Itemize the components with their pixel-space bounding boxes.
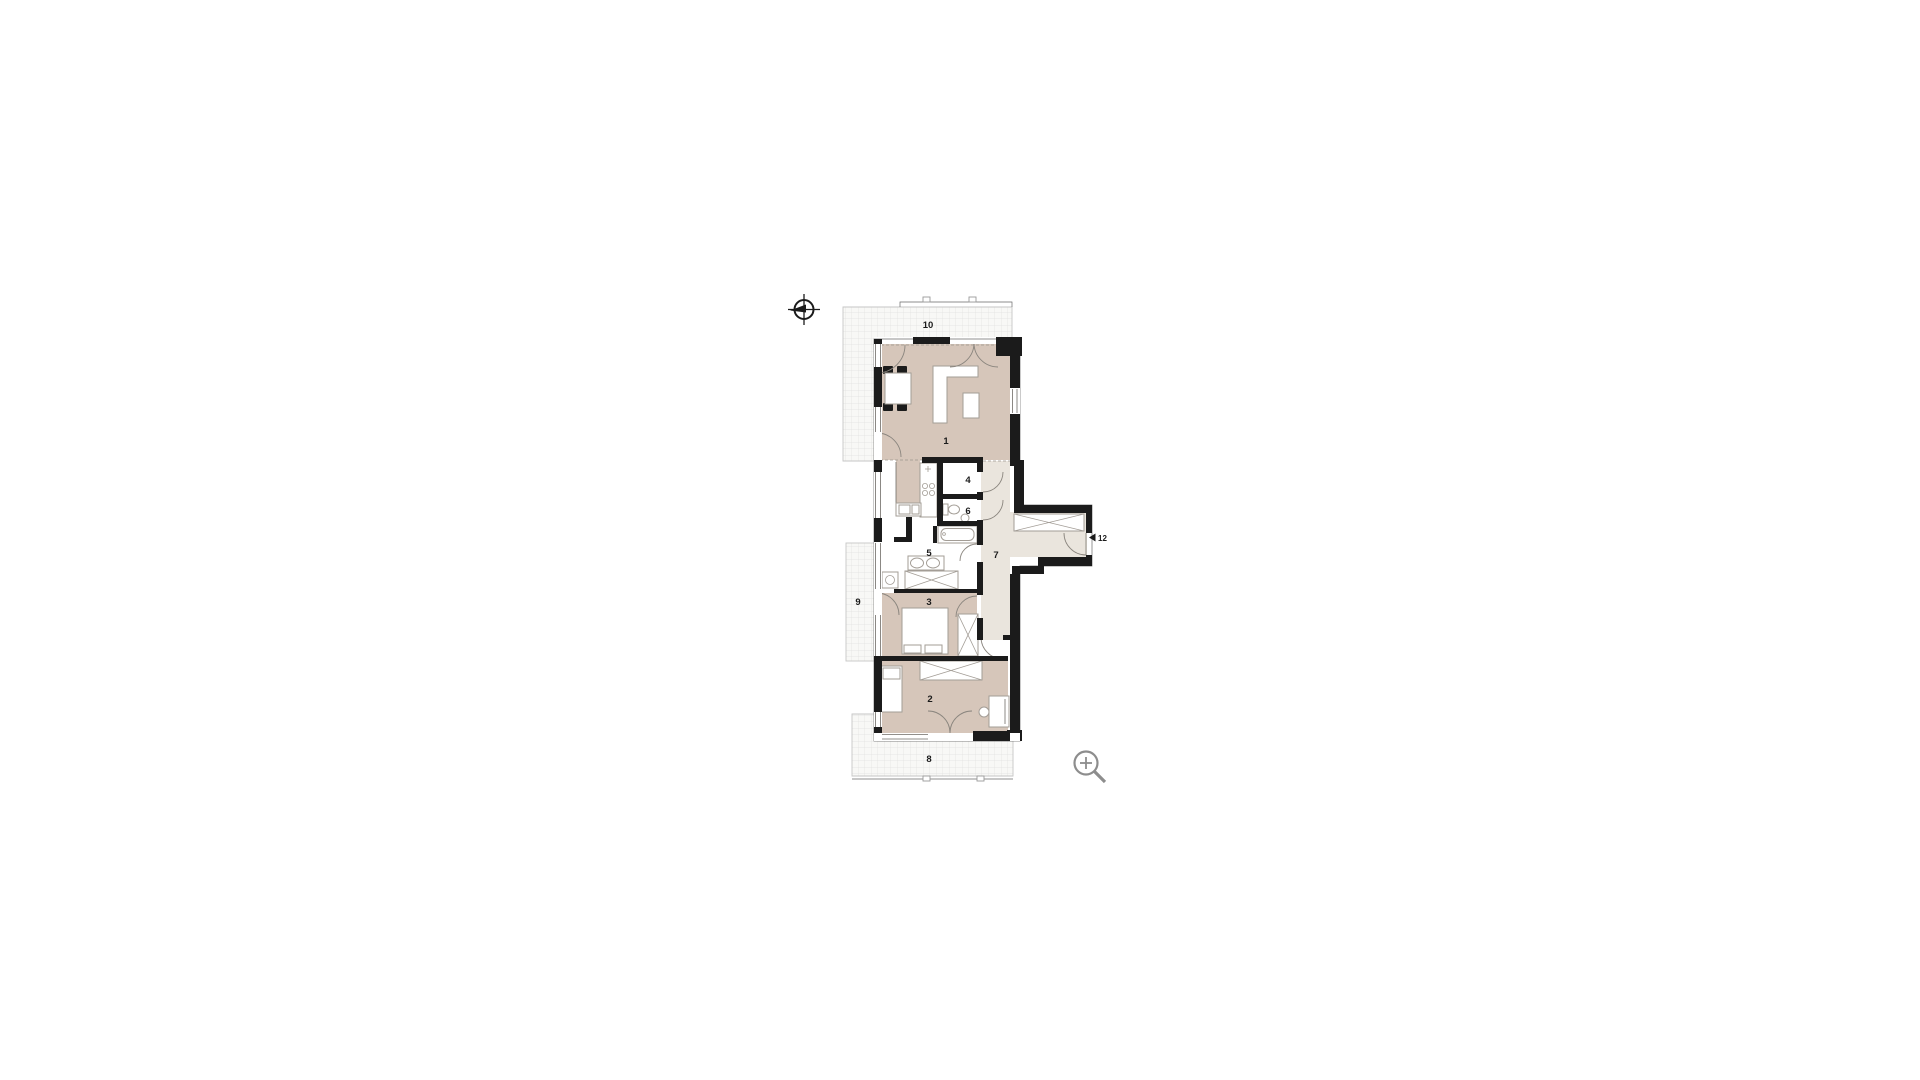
room-label-3: 3 bbox=[926, 597, 931, 608]
floor-plan: 10 9 8 bbox=[0, 0, 1920, 1080]
railing-post bbox=[969, 297, 976, 302]
kitchen-floor bbox=[896, 460, 920, 506]
washbasin bbox=[927, 558, 940, 568]
kitchen-sink bbox=[899, 505, 910, 514]
toilet-tank bbox=[943, 504, 948, 515]
right-window bbox=[1010, 388, 1020, 414]
dining-set bbox=[883, 366, 911, 411]
pillow bbox=[925, 645, 942, 653]
door-arc bbox=[960, 544, 977, 561]
coffee-table bbox=[963, 393, 979, 418]
room-label-terrace-8: 8 bbox=[926, 754, 931, 765]
entrance-label-12: 12 bbox=[1098, 534, 1107, 543]
bathtub-inner bbox=[941, 529, 974, 541]
desk bbox=[989, 696, 1009, 727]
room-label-1: 1 bbox=[943, 436, 949, 447]
door-arc bbox=[981, 637, 1003, 659]
toilet bbox=[949, 505, 960, 514]
kitchen-counter bbox=[920, 463, 937, 517]
washbasin bbox=[911, 558, 924, 568]
pillow bbox=[883, 668, 900, 679]
railing-post bbox=[923, 297, 930, 302]
terrace-9: 9 bbox=[846, 543, 878, 661]
room-label-5: 5 bbox=[926, 548, 932, 559]
zoom-in-icon[interactable] bbox=[1075, 752, 1106, 783]
room-label-7: 7 bbox=[993, 550, 998, 561]
railing-post bbox=[923, 776, 930, 781]
pillow bbox=[904, 645, 921, 653]
sink-drainer bbox=[912, 505, 919, 514]
dining-table bbox=[885, 373, 911, 404]
entry-closet bbox=[1014, 514, 1084, 531]
wardrobe bbox=[958, 614, 978, 656]
room-label-terrace-10: 10 bbox=[923, 320, 934, 331]
desk-chair bbox=[979, 707, 989, 717]
floor-plan-canvas: 10 9 8 bbox=[0, 0, 1920, 1080]
room-label-6: 6 bbox=[965, 506, 970, 517]
room-3-bedroom bbox=[902, 608, 978, 656]
room-label-terrace-9: 9 bbox=[855, 597, 860, 608]
washing-machine bbox=[882, 572, 898, 588]
closet bbox=[920, 661, 982, 680]
room-label-4: 4 bbox=[965, 475, 971, 486]
room-label-2: 2 bbox=[927, 694, 932, 705]
north-arrow-compass-icon bbox=[788, 294, 820, 325]
railing-post bbox=[977, 776, 984, 781]
hall-closet bbox=[905, 571, 958, 589]
